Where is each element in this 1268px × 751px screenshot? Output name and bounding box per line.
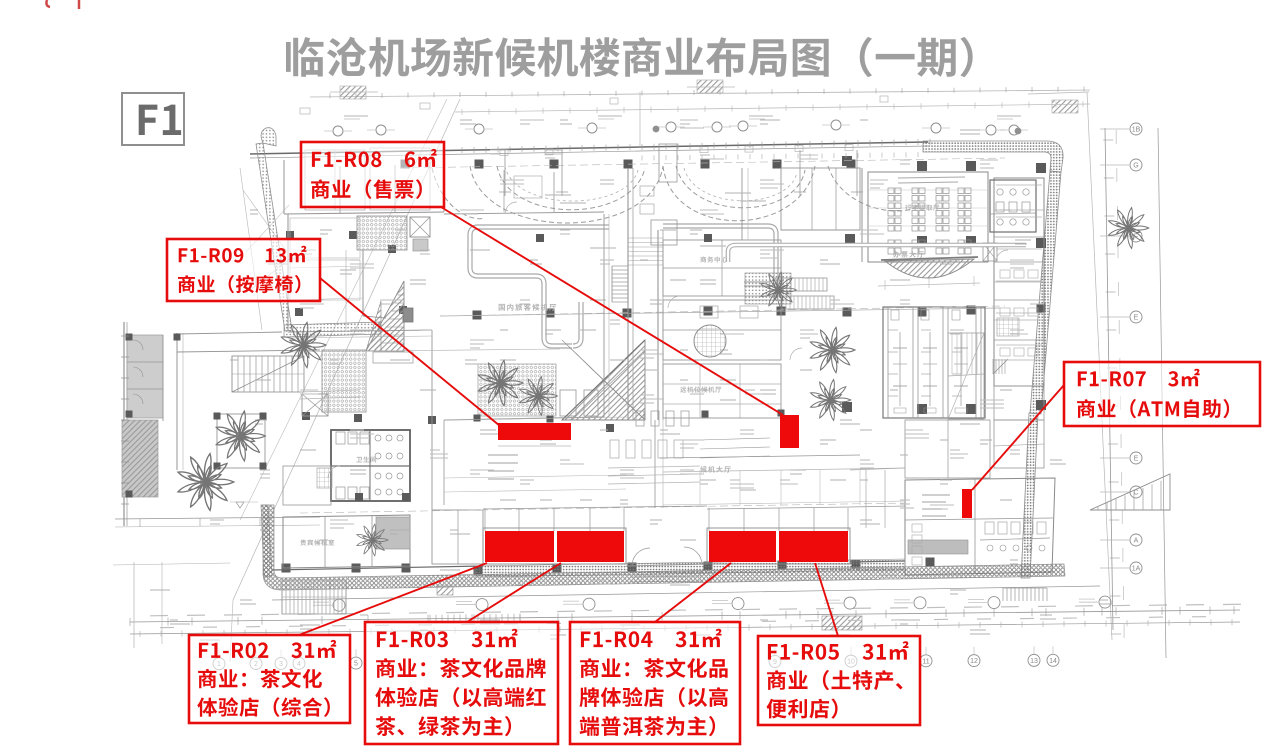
svg-text:11: 11 (922, 658, 929, 665)
svg-text:5: 5 (354, 661, 358, 668)
svg-text:1A: 1A (1132, 566, 1141, 573)
svg-text:E: E (1134, 456, 1139, 463)
svg-text:A: A (1134, 538, 1139, 545)
svg-text:G: G (1133, 163, 1138, 170)
svg-text:12: 12 (970, 658, 978, 665)
svg-text:1B: 1B (1132, 127, 1141, 134)
svg-text:13: 13 (1030, 658, 1038, 665)
svg-text:E: E (1134, 315, 1139, 322)
svg-text:14: 14 (1049, 658, 1057, 665)
